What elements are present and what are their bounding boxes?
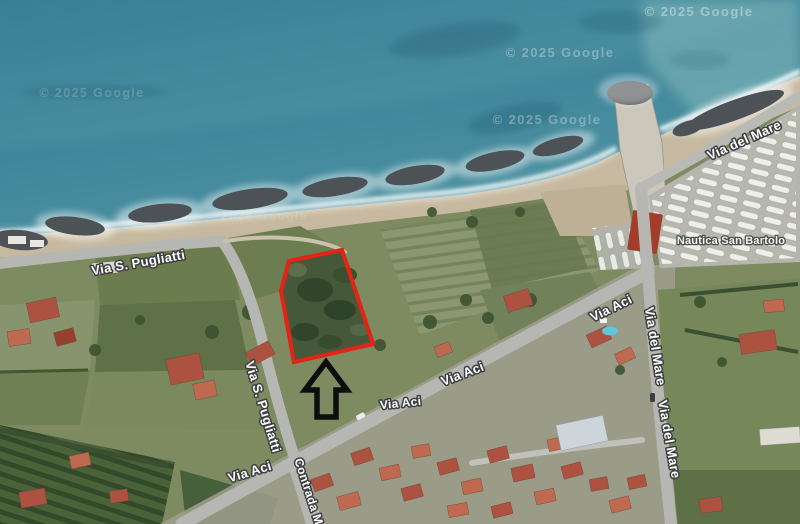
map-attribution: © 2025 Google bbox=[493, 112, 602, 127]
map-attribution: © 2025 Google bbox=[506, 45, 615, 60]
map-attribution: © 2025 Google bbox=[645, 4, 754, 19]
satellite-map: © 2025 Google© 2025 Google© 2025 Google©… bbox=[0, 0, 800, 524]
poi-label: Nautica San Bartolo bbox=[677, 235, 785, 247]
map-attribution: © 2025 Google bbox=[206, 209, 308, 223]
poi-labels: Nautica San Bartolo bbox=[677, 235, 785, 247]
map-attribution: © 2025 Google bbox=[39, 86, 144, 100]
